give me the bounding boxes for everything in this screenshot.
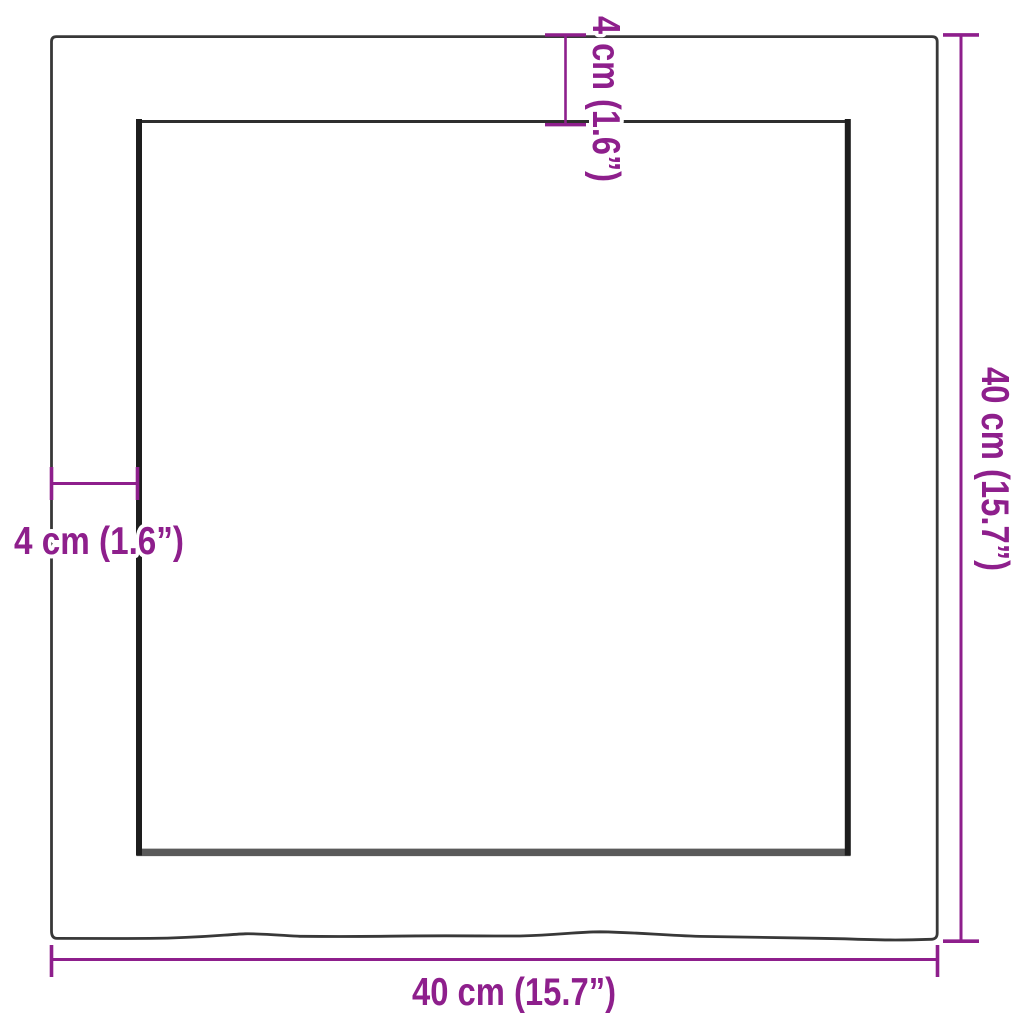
svg-text:4 cm (1.6”): 4 cm (1.6”) [14,520,184,563]
svg-text:4 cm (1.6”): 4 cm (1.6”) [584,16,627,182]
svg-text:40 cm (15.7”): 40 cm (15.7”) [412,971,616,1014]
svg-text:40 cm (15.7”): 40 cm (15.7”) [973,367,1016,571]
